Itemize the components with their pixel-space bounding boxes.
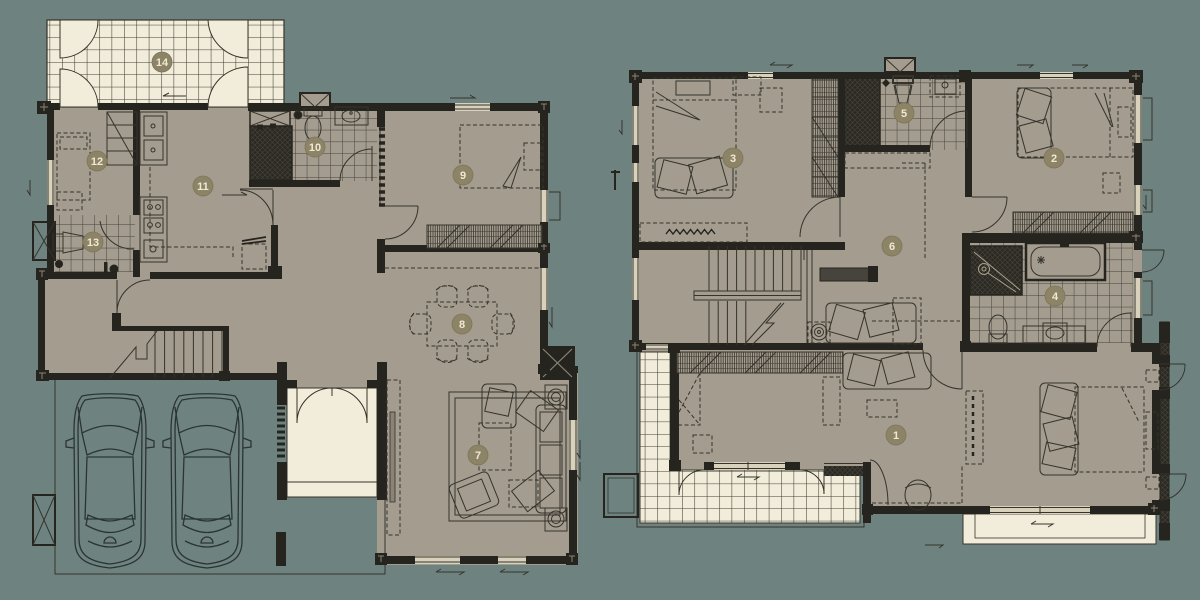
svg-text:7: 7 bbox=[475, 450, 481, 462]
svg-text:8: 8 bbox=[459, 319, 465, 331]
svg-text:4: 4 bbox=[1052, 291, 1059, 303]
svg-text:3: 3 bbox=[730, 153, 736, 165]
svg-text:1: 1 bbox=[893, 430, 899, 442]
svg-text:13: 13 bbox=[87, 237, 99, 249]
svg-text:12: 12 bbox=[91, 156, 103, 168]
svg-text:9: 9 bbox=[460, 170, 466, 182]
svg-text:14: 14 bbox=[156, 57, 169, 69]
svg-text:5: 5 bbox=[901, 108, 907, 120]
svg-text:11: 11 bbox=[197, 181, 209, 193]
svg-text:2: 2 bbox=[1051, 153, 1057, 165]
svg-text:6: 6 bbox=[889, 241, 895, 253]
svg-text:10: 10 bbox=[309, 142, 321, 154]
